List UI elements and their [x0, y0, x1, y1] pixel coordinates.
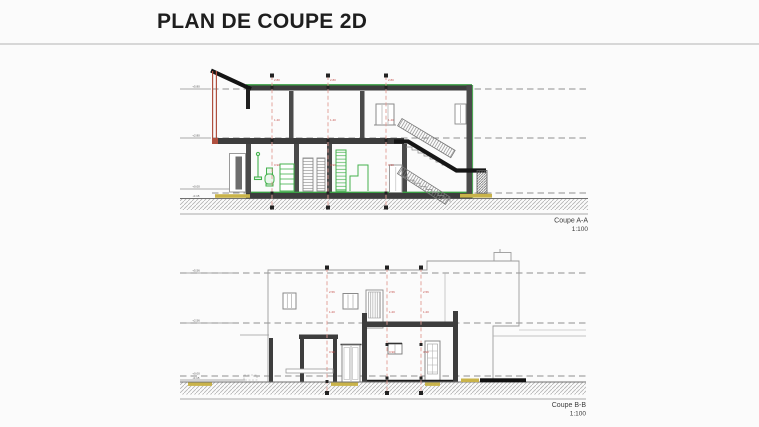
- tan-paving: [188, 383, 212, 386]
- tan-paving: [460, 194, 492, 198]
- upper-partition: [360, 91, 365, 138]
- section-a-drawing: +5.80 +2.80 +0.00 -0.15: [180, 71, 588, 234]
- level-label: +5.80: [192, 85, 200, 89]
- level-label: +0.00: [192, 185, 200, 189]
- page-header: PLAN DE COUPE 2D: [0, 0, 759, 45]
- axis-dim-label: 0.90: [329, 350, 335, 354]
- cut-wall-left: [362, 313, 367, 382]
- tan-paving: [461, 379, 479, 383]
- ground-left-wall: [246, 144, 251, 193]
- roof-step: [246, 89, 250, 109]
- cut-slab: [362, 322, 458, 328]
- axis-dim-label: 2.56: [389, 290, 395, 294]
- axis-dim-label: 2.80: [330, 78, 336, 82]
- axis-dim-label: 0.90: [330, 163, 336, 167]
- ground-partition: [294, 144, 299, 193]
- chimney: [494, 253, 511, 262]
- facade-window: [283, 293, 296, 309]
- red-slab-end: [212, 138, 218, 144]
- axis-dim-label: 1.20: [423, 310, 429, 314]
- axis-dim-label: 0.90: [274, 163, 280, 167]
- section-a-scale: 1:100: [572, 226, 589, 233]
- right-wall: [467, 85, 473, 199]
- axis-dim-label: 2.56: [329, 290, 335, 294]
- room-glazed-door: [425, 341, 440, 382]
- toilet-fixture: [265, 168, 274, 186]
- drawing-canvas: +5.80 +2.80 +0.00 -0.15: [0, 45, 759, 427]
- sloped-roof: [211, 71, 251, 90]
- level-label: -0.15: [193, 376, 200, 380]
- tall-cabinet: [303, 158, 313, 191]
- roof-slab: [246, 86, 472, 91]
- shower-fixture: [255, 152, 262, 179]
- section-b-scale: 1:100: [570, 411, 587, 418]
- level-label: +2.80: [192, 134, 200, 138]
- tan-paving: [331, 383, 358, 386]
- axis-dim-label: 1.40: [388, 118, 394, 122]
- axis-dim-label: 0.90: [389, 350, 395, 354]
- axis-dim-label: 2.80: [388, 78, 394, 82]
- exterior-door: [230, 154, 246, 193]
- pergola-beam: [299, 335, 338, 340]
- axis-dim-label: 0.90: [423, 350, 429, 354]
- pergola-post: [300, 339, 304, 382]
- green-counter-steps: [350, 165, 368, 191]
- cut-wall-right: [453, 311, 458, 382]
- level-label: +2.56: [192, 319, 200, 323]
- upper-partition: [289, 91, 294, 138]
- terrace-slab: [480, 378, 526, 382]
- section-b-drawing: +5.56 +2.56 +0.00 -0.15: [180, 249, 586, 418]
- page-title: PLAN DE COUPE 2D: [157, 10, 367, 34]
- axis-dim-label: 1.40: [330, 118, 336, 122]
- section-b-cut-room: [362, 311, 458, 382]
- tan-paving: [215, 194, 250, 198]
- section-b-background-outline: [240, 249, 586, 382]
- level-label: -0.15: [193, 194, 200, 198]
- axis-dim-label: 2.80: [274, 78, 280, 82]
- drawer-unit: [280, 164, 294, 191]
- mid-floor-slab: [212, 138, 404, 144]
- level-label: +0.00: [192, 372, 200, 376]
- right-wall-window: [455, 104, 466, 124]
- green-ladder-shelf: [336, 150, 346, 191]
- pergola-post: [333, 339, 337, 382]
- pergola: [286, 335, 338, 383]
- axis-dim-label: 1.20: [389, 310, 395, 314]
- red-section-wall: [213, 71, 217, 143]
- tan-paving: [425, 383, 440, 386]
- section-a-caption: Coupe A-A: [554, 218, 588, 225]
- french-door: [341, 345, 362, 383]
- stair-support-pillar: [477, 171, 487, 194]
- level-label: +5.56: [192, 269, 200, 273]
- tall-cabinet: [317, 158, 325, 191]
- axis-dim-label: 1.20: [329, 310, 335, 314]
- section-b-caption: Coupe B-B: [552, 402, 587, 409]
- axis-dim-label: 1.40: [274, 118, 280, 122]
- axis-dim-label: 2.56: [423, 290, 429, 294]
- axis-dim-label: 0.90: [388, 163, 394, 167]
- facade-window: [343, 294, 358, 310]
- bench: [286, 369, 333, 373]
- boundary-post: [269, 338, 273, 382]
